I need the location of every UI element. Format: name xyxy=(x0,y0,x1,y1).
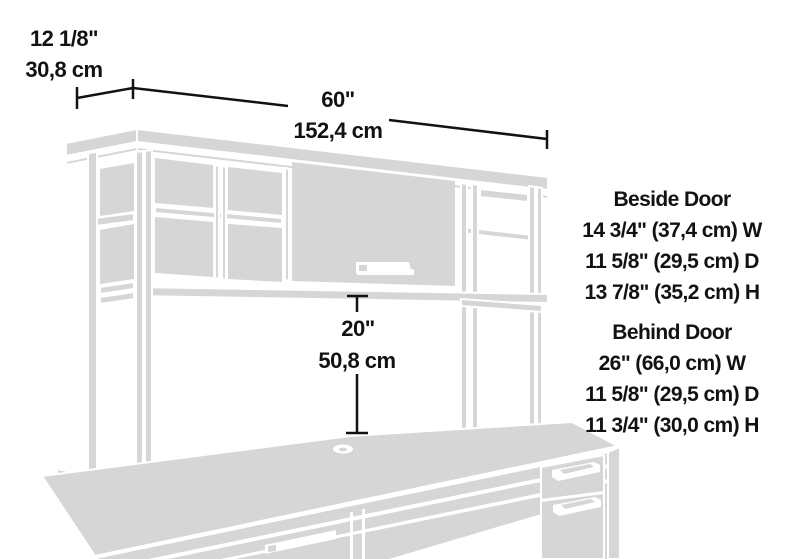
beside-door-width: 14 3/4" (37,4 cm) W xyxy=(548,215,796,246)
desk-right-side xyxy=(608,447,620,559)
behind-door-height: 11 3/4" (30,0 cm) H xyxy=(548,410,796,441)
dimension-diagram: 12 1/8" 30,8 cm 60" 152,4 cm 20" 50,8 cm… xyxy=(0,0,800,559)
hutch-door xyxy=(285,162,455,286)
beside-door-specs: Beside Door 14 3/4" (37,4 cm) W 11 5/8" … xyxy=(548,184,796,308)
width-label-metric: 152,4 cm xyxy=(263,118,413,144)
beside-door-height: 13 7/8" (35,2 cm) H xyxy=(548,277,796,308)
clearance-label-metric: 50,8 cm xyxy=(282,348,432,374)
behind-door-specs: Behind Door 26" (66,0 cm) W 11 5/8" (29,… xyxy=(548,317,796,441)
behind-door-depth: 11 5/8" (29,5 cm) D xyxy=(548,379,796,410)
depth-dimension-line xyxy=(77,79,133,109)
beside-door-title: Beside Door xyxy=(548,184,796,215)
width-label-inches: 60" xyxy=(263,87,413,113)
compartment-specs: Beside Door 14 3/4" (37,4 cm) W 11 5/8" … xyxy=(548,184,796,441)
hutch-right-shelves xyxy=(461,183,542,444)
depth-label-inches: 12 1/8" xyxy=(0,26,139,52)
right-pedestal xyxy=(541,455,604,559)
beside-door-depth: 11 5/8" (29,5 cm) D xyxy=(548,246,796,277)
desk-line-art xyxy=(42,422,620,559)
depth-label-metric: 30,8 cm xyxy=(0,57,139,83)
hutch-cubbies xyxy=(155,158,282,282)
behind-door-title: Behind Door xyxy=(548,317,796,348)
hutch-bottom-board xyxy=(136,287,548,312)
clearance-label-inches: 20" xyxy=(283,316,433,342)
behind-door-width: 26" (66,0 cm) W xyxy=(548,348,796,379)
